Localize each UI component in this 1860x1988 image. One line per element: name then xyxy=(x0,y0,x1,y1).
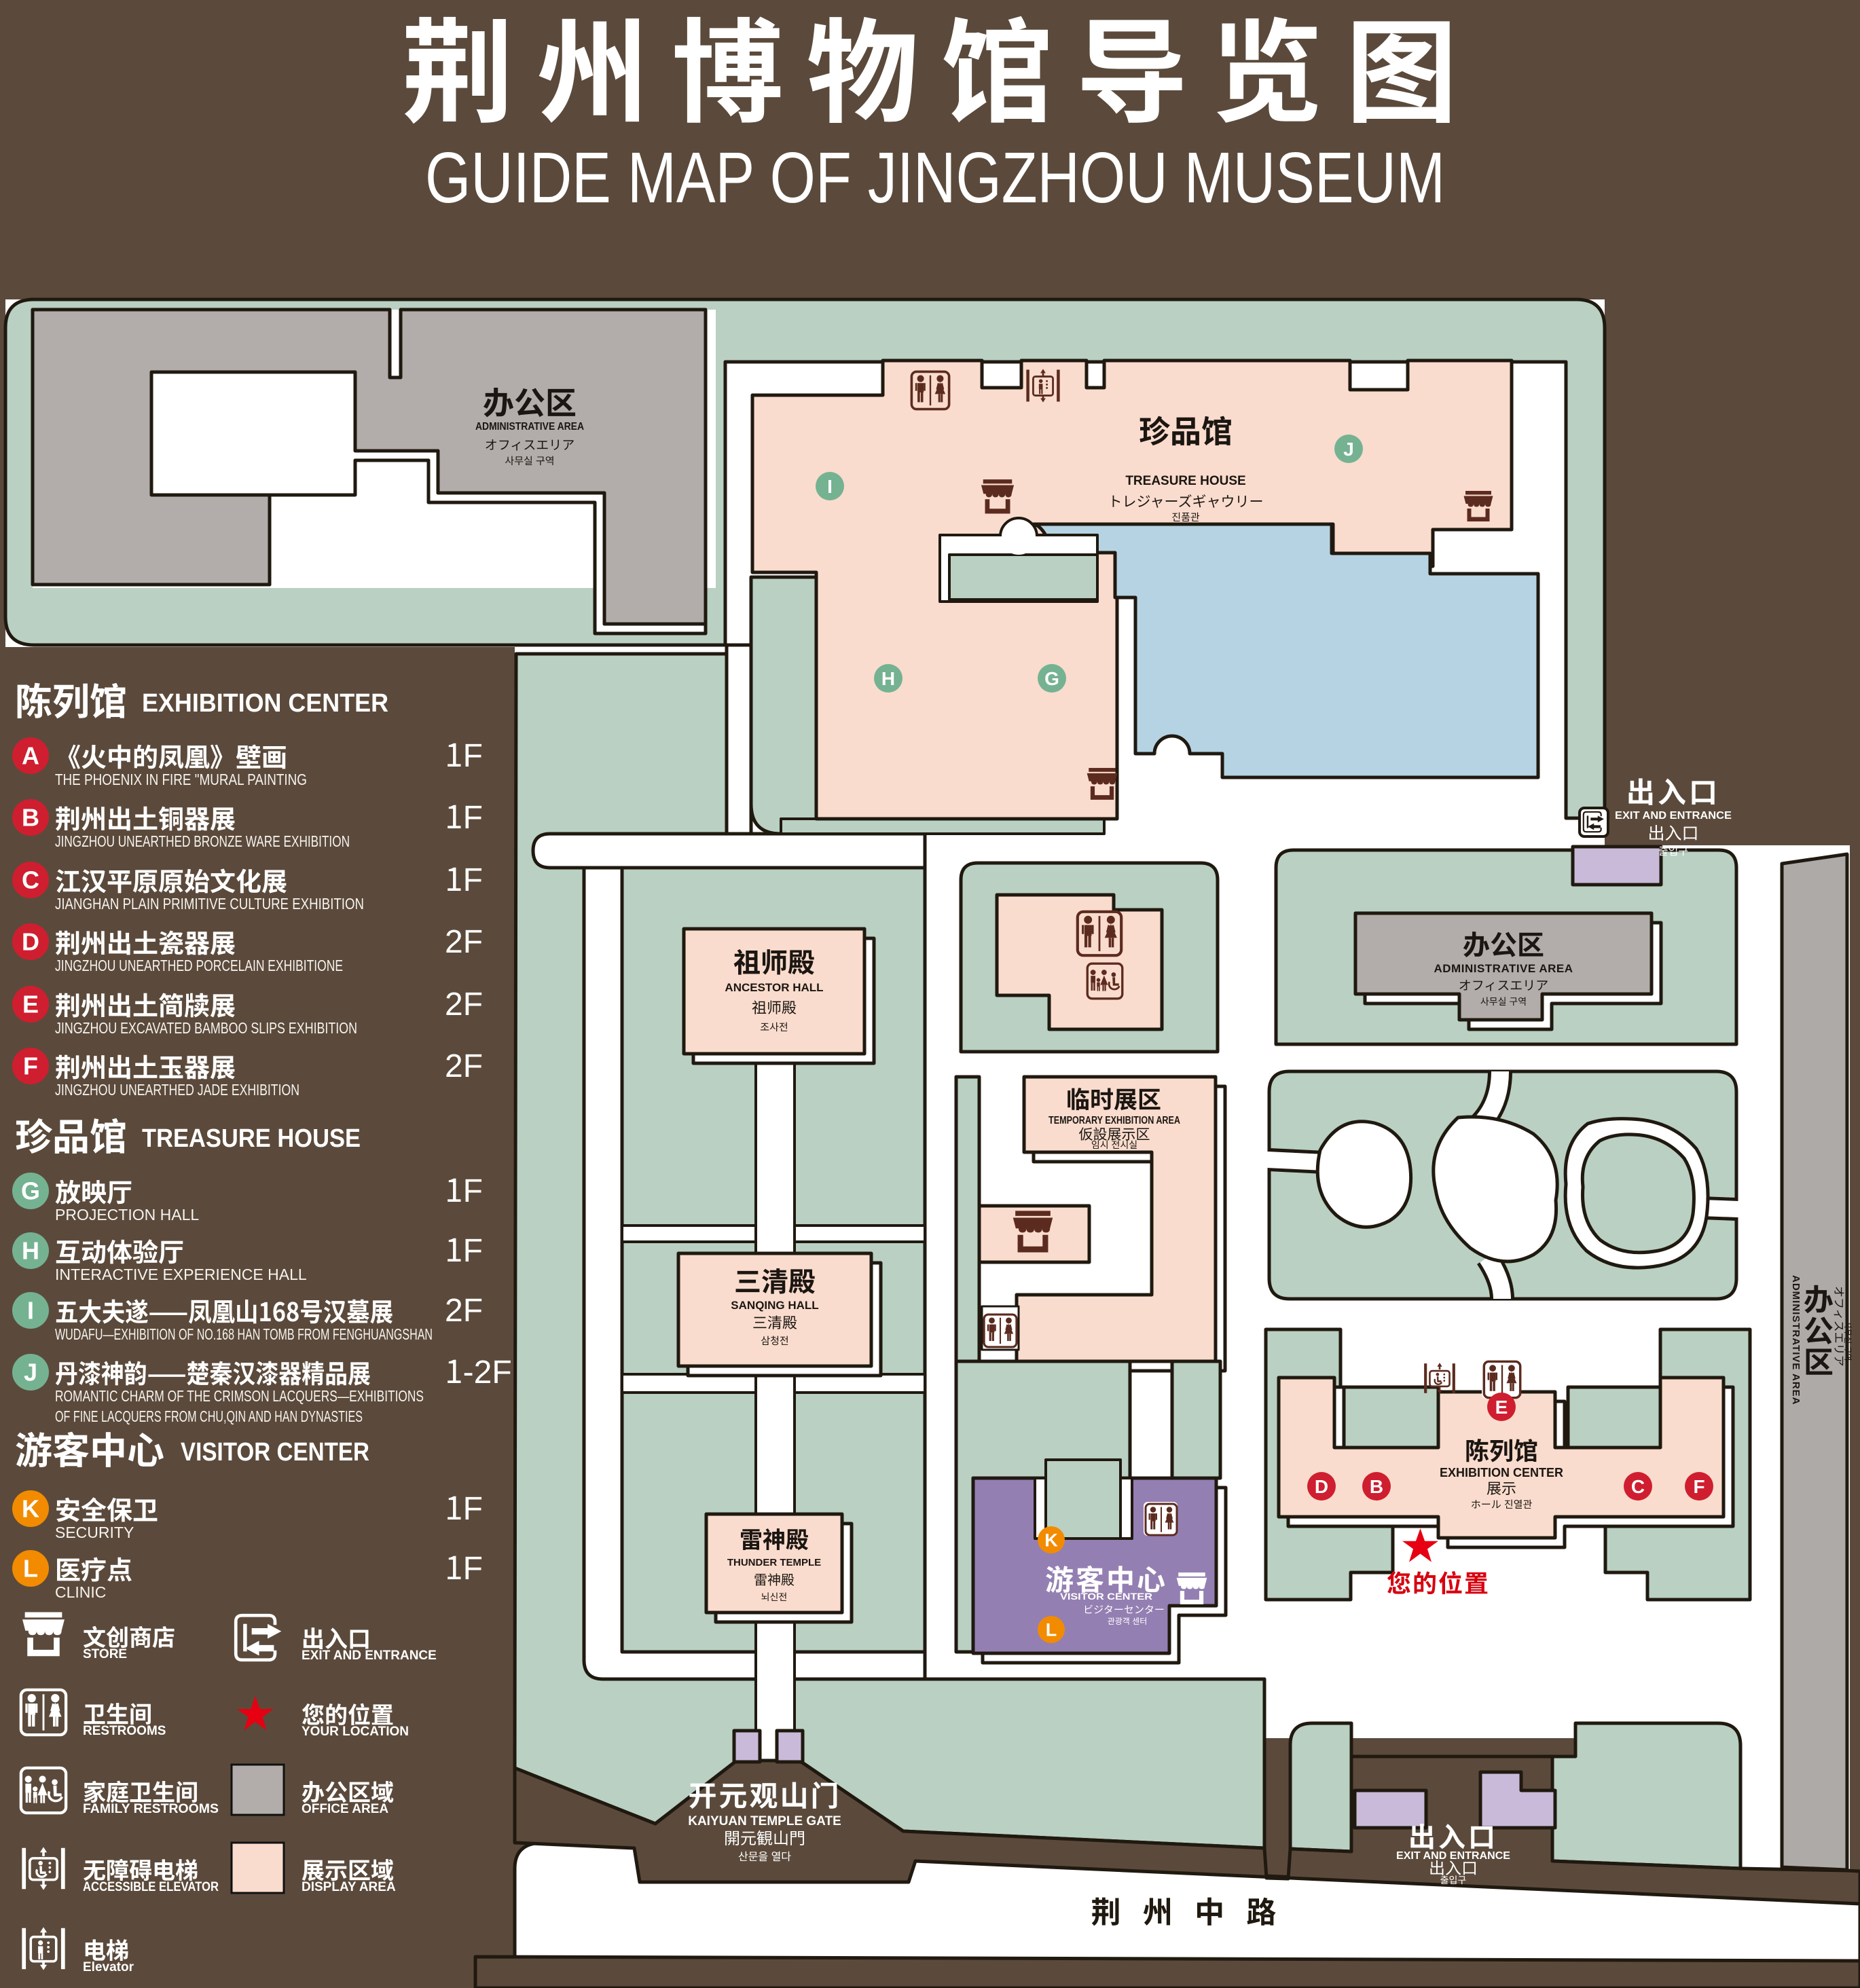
svg-text:STORE: STORE xyxy=(83,1647,127,1661)
svg-text:EXHIBITION CENTER: EXHIBITION CENTER xyxy=(142,689,388,718)
svg-text:荆州出土玉器展: 荆州出土玉器展 xyxy=(55,1047,236,1084)
svg-text:区: 区 xyxy=(1804,1338,1834,1382)
svg-text:출입구: 출입구 xyxy=(1658,842,1688,858)
svg-text:JINGZHOU UNEARTHED JADE EXHIBI: JINGZHOU UNEARTHED JADE EXHIBITION xyxy=(55,1081,299,1099)
svg-text:K: K xyxy=(1044,1525,1058,1551)
svg-text:JINGZHOU UNEARTHED PORCELAIN E: JINGZHOU UNEARTHED PORCELAIN EXHIBITIONE xyxy=(55,957,343,974)
svg-text:C: C xyxy=(1631,1472,1645,1499)
svg-text:三清殿: 三清殿 xyxy=(752,1311,797,1333)
svg-text:Elevator: Elevator xyxy=(83,1960,134,1974)
svg-text:办公区: 办公区 xyxy=(483,379,577,424)
svg-text:THUNDER TEMPLE: THUNDER TEMPLE xyxy=(727,1557,821,1568)
svg-text:SECURITY: SECURITY xyxy=(55,1524,134,1541)
svg-text:L: L xyxy=(23,1549,38,1585)
svg-text:G: G xyxy=(1044,664,1059,691)
svg-text:雷神殿: 雷神殿 xyxy=(740,1522,809,1555)
svg-text:D: D xyxy=(1315,1472,1328,1499)
svg-text:您的位置: 您的位置 xyxy=(1387,1564,1490,1600)
svg-text:TREASURE HOUSE: TREASURE HOUSE xyxy=(142,1124,361,1153)
svg-text:C: C xyxy=(22,861,39,896)
svg-text:办公区: 办公区 xyxy=(1463,923,1544,963)
svg-text:ANCESTOR HALL: ANCESTOR HALL xyxy=(725,981,823,994)
svg-text:F: F xyxy=(23,1047,38,1082)
svg-text:INTERACTIVE EXPERIENCE HALL: INTERACTIVE EXPERIENCE HALL xyxy=(55,1266,307,1283)
svg-text:JIANGHAN PLAIN PRIMITIVE CULTU: JIANGHAN PLAIN PRIMITIVE CULTURE EXHIBIT… xyxy=(55,895,364,913)
svg-text:출입구: 출입구 xyxy=(1440,1873,1467,1887)
svg-text:出入口: 出入口 xyxy=(1647,820,1698,845)
svg-text:放映厅: 放映厅 xyxy=(55,1172,132,1209)
svg-text:FAMILY RESTROOMS: FAMILY RESTROOMS xyxy=(83,1802,219,1816)
svg-text:E: E xyxy=(22,985,39,1020)
svg-text:DISPLAY AREA: DISPLAY AREA xyxy=(302,1880,396,1894)
svg-text:ホール 진열관: ホール 진열관 xyxy=(1471,1497,1533,1511)
svg-text:1F: 1F xyxy=(445,790,483,838)
svg-text:荆州博物馆导览图: 荆州博物馆导览图 xyxy=(402,0,1480,145)
svg-text:オフィスエリア: オフィスエリア xyxy=(485,435,575,454)
svg-text:OFFICE AREA: OFFICE AREA xyxy=(302,1802,388,1816)
svg-text:オフィスエリア: オフィスエリア xyxy=(1459,976,1549,994)
svg-text:산문을 열다: 산문을 열다 xyxy=(738,1847,791,1864)
svg-text:B: B xyxy=(1370,1472,1383,1499)
svg-text:祖师殿: 祖师殿 xyxy=(752,996,797,1018)
svg-text:L: L xyxy=(1046,1615,1057,1641)
svg-text:珍品馆: 珍品馆 xyxy=(1139,407,1233,452)
svg-text:2F: 2F xyxy=(445,1039,483,1086)
svg-text:E: E xyxy=(1495,1393,1508,1420)
svg-text:ビジターセンター: ビジターセンター xyxy=(1083,1602,1165,1617)
svg-text:1-2F: 1-2F xyxy=(445,1345,512,1393)
svg-text:사무실 구역: 사무실 구역 xyxy=(1480,995,1527,1008)
svg-text:安全保卫: 安全保卫 xyxy=(55,1490,158,1527)
svg-text:临时展区: 临时展区 xyxy=(1066,1081,1161,1116)
svg-text:2F: 2F xyxy=(445,915,483,962)
svg-text:陈列馆: 陈列馆 xyxy=(15,671,127,726)
svg-text:1F: 1F xyxy=(445,853,483,900)
svg-text:B: B xyxy=(22,798,39,834)
svg-text:トレジャーズギャウリー: トレジャーズギャウリー xyxy=(1108,491,1264,511)
svg-text:ROMANTIC CHARM OF THE CRIMSON: ROMANTIC CHARM OF THE CRIMSON LACQUERS—E… xyxy=(55,1387,424,1405)
svg-text:丹漆神韵——楚秦汉漆器精品展: 丹漆神韵——楚秦汉漆器精品展 xyxy=(55,1353,371,1391)
svg-text:ADMINISTRATIVE AREA: ADMINISTRATIVE AREA xyxy=(1790,1275,1802,1405)
svg-text:出入口: 出入口 xyxy=(1408,1816,1498,1855)
svg-text:H: H xyxy=(881,664,895,691)
svg-text:관광객 센터: 관광객 센터 xyxy=(1108,1615,1148,1627)
svg-text:J: J xyxy=(1343,435,1354,462)
svg-text:K: K xyxy=(22,1490,39,1525)
svg-text:I: I xyxy=(27,1291,34,1327)
svg-text:뇌신전: 뇌신전 xyxy=(761,1590,788,1604)
svg-text:1F: 1F xyxy=(445,1481,483,1529)
svg-text:荆 州 中 路: 荆 州 中 路 xyxy=(1091,1888,1283,1932)
svg-text:PROJECTION HALL: PROJECTION HALL xyxy=(55,1206,199,1223)
svg-text:荆州出土瓷器展: 荆州出土瓷器展 xyxy=(55,923,236,960)
svg-text:D: D xyxy=(22,923,39,958)
svg-text:삼청전: 삼청전 xyxy=(761,1333,788,1348)
svg-text:《火中的凤凰》壁画: 《火中的凤凰》壁画 xyxy=(55,737,287,774)
svg-text:WUDAFU—EXHIBITION OF NO.168 HA: WUDAFU—EXHIBITION OF NO.168 HAN TOMB FRO… xyxy=(55,1325,433,1343)
svg-text:祖师殿: 祖师殿 xyxy=(733,941,815,980)
svg-text:I: I xyxy=(827,472,833,499)
svg-text:A: A xyxy=(22,737,39,772)
svg-text:荆州出土铜器展: 荆州出土铜器展 xyxy=(55,798,236,836)
svg-text:VISITOR CENTER: VISITOR CENTER xyxy=(1060,1591,1152,1602)
svg-text:CLINIC: CLINIC xyxy=(55,1583,106,1601)
svg-text:出入口: 出入口 xyxy=(1626,770,1720,811)
svg-text:陈列馆: 陈列馆 xyxy=(1465,1432,1538,1467)
svg-text:1F: 1F xyxy=(445,729,483,776)
svg-text:RESTROOMS: RESTROOMS xyxy=(83,1724,166,1738)
svg-text:1F: 1F xyxy=(445,1223,483,1271)
svg-text:雷神殿: 雷神殿 xyxy=(754,1569,795,1589)
svg-text:江汉平原原始文化展: 江汉平原原始文化展 xyxy=(55,861,287,898)
svg-text:1F: 1F xyxy=(445,1164,483,1211)
svg-text:開元観山門: 開元観山門 xyxy=(724,1825,805,1849)
svg-text:G: G xyxy=(21,1172,40,1207)
svg-text:사무실 구역: 사무실 구역 xyxy=(1842,1321,1854,1361)
svg-text:SANQING HALL: SANQING HALL xyxy=(731,1299,818,1312)
svg-text:五大夫遂——凤凰山168号汉墓展: 五大夫遂——凤凰山168号汉墓展 xyxy=(55,1291,393,1329)
svg-text:ADMINISTRATIVE AREA: ADMINISTRATIVE AREA xyxy=(475,421,584,432)
svg-text:1F: 1F xyxy=(445,1541,483,1589)
svg-text:임시 전시실: 임시 전시실 xyxy=(1091,1138,1137,1152)
svg-text:开元观山门: 开元观山门 xyxy=(688,1773,841,1815)
svg-text:EXIT AND ENTRANCE: EXIT AND ENTRANCE xyxy=(302,1649,437,1663)
svg-text:THE PHOENIX IN FIRE "MURAL PAI: THE PHOENIX IN FIRE "MURAL PAINTING xyxy=(55,771,307,788)
svg-text:JINGZHOU UNEARTHED BRONZE WARE: JINGZHOU UNEARTHED BRONZE WARE EXHIBITIO… xyxy=(55,832,350,850)
svg-text:JINGZHOU EXCAVATED BAMBOO SLIP: JINGZHOU EXCAVATED BAMBOO SLIPS EXHIBITI… xyxy=(55,1019,357,1037)
svg-text:YOUR LOCATION: YOUR LOCATION xyxy=(302,1725,409,1739)
svg-text:사무실 구역: 사무실 구역 xyxy=(505,454,554,468)
svg-text:2F: 2F xyxy=(445,1283,483,1331)
svg-text:游客中心: 游客中心 xyxy=(15,1420,164,1475)
svg-text:조사전: 조사전 xyxy=(760,1020,788,1034)
svg-text:GUIDE MAP OF JINGZHOU MUSEUM: GUIDE MAP OF JINGZHOU MUSEUM xyxy=(425,138,1445,218)
svg-text:2F: 2F xyxy=(445,977,483,1025)
svg-text:진품관: 진품관 xyxy=(1171,510,1200,524)
svg-text:J: J xyxy=(24,1353,37,1388)
svg-text:ACCESSIBLE ELEVATOR: ACCESSIBLE ELEVATOR xyxy=(83,1880,219,1894)
svg-text:展示: 展示 xyxy=(1487,1477,1516,1498)
svg-text:荆州出土简牍展: 荆州出土简牍展 xyxy=(55,985,236,1023)
svg-text:H: H xyxy=(22,1232,39,1267)
svg-text:三清殿: 三清殿 xyxy=(734,1260,816,1300)
svg-text:ADMINISTRATIVE AREA: ADMINISTRATIVE AREA xyxy=(1434,962,1573,975)
svg-text:互动体验厅: 互动体验厅 xyxy=(55,1232,184,1269)
svg-text:TREASURE HOUSE: TREASURE HOUSE xyxy=(1125,474,1245,488)
svg-text:F: F xyxy=(1693,1472,1704,1499)
svg-text:珍品馆: 珍品馆 xyxy=(15,1107,127,1161)
svg-text:VISITOR CENTER: VISITOR CENTER xyxy=(181,1438,369,1467)
svg-text:医疗点: 医疗点 xyxy=(55,1549,132,1587)
